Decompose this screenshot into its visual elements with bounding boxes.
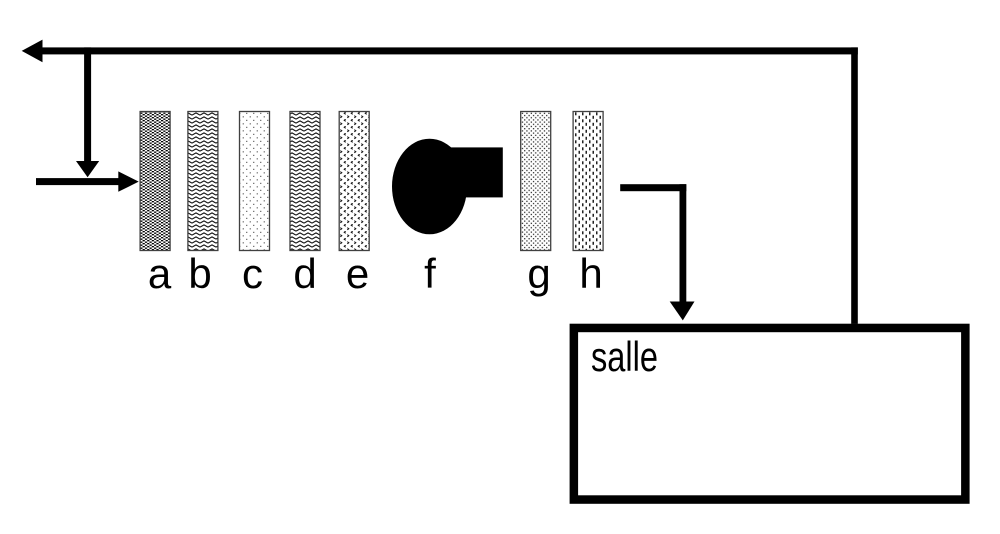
svg-text:d: d [293,250,316,297]
svg-text:e: e [346,250,369,297]
svg-text:c: c [242,250,263,297]
svg-text:g: g [527,250,550,297]
svg-text:salle: salle [591,333,658,380]
svg-text:h: h [579,250,602,297]
svg-text:b: b [188,250,211,297]
svg-text:f: f [424,250,436,297]
svg-text:a: a [148,250,172,297]
